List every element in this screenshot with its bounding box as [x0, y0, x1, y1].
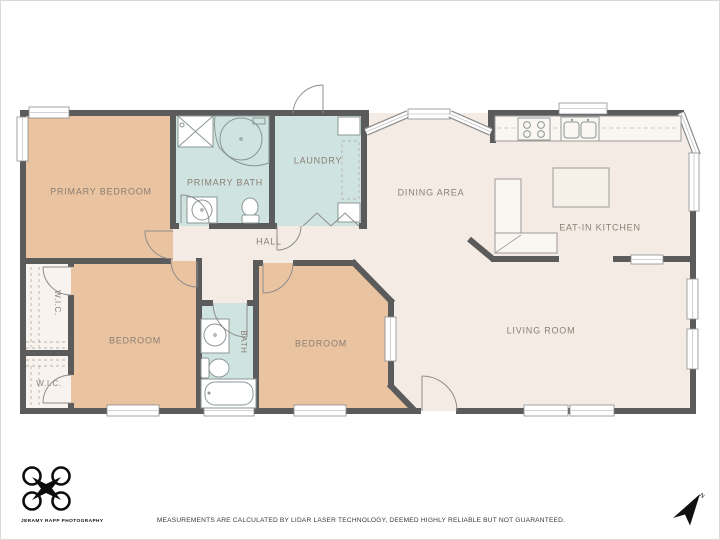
- label-wic2: W.I.C.: [36, 379, 61, 388]
- window-living-right-1: [687, 279, 698, 319]
- window-bedroom2-right: [385, 317, 396, 361]
- sink-icon-primary-bath: [187, 197, 217, 223]
- label-kitchen: EAT-IN KITCHEN: [559, 222, 641, 232]
- label-bath2: BATH: [239, 330, 248, 353]
- stove-icon: [518, 118, 550, 140]
- window-bedroom1-bottom: [107, 405, 159, 416]
- shower-icon: [178, 116, 213, 147]
- kitchen-island: [553, 168, 609, 207]
- measurement-disclaimer: MEASUREMENTS ARE CALCULATED BY LIDAR LAS…: [157, 517, 565, 524]
- label-wic1: W.I.C.: [53, 290, 62, 315]
- window-top-left: [29, 107, 69, 118]
- window-left-wall: [17, 117, 28, 161]
- door-laundry-exterior: [293, 85, 323, 113]
- label-primary-bath: PRIMARY BATH: [187, 177, 263, 187]
- kitchen-corner-window-2: [689, 153, 699, 211]
- window-living-bottom-2: [570, 405, 614, 416]
- kitchen-sink-icon: [561, 117, 599, 141]
- window-living-right-2: [687, 329, 698, 369]
- label-bedroom2: BEDROOM: [295, 338, 347, 348]
- drone-logo-icon: [24, 468, 70, 510]
- bathtub-icon-bath2: [201, 379, 256, 408]
- window-living-bottom-1: [524, 405, 568, 416]
- bay-window-center: [408, 109, 450, 119]
- toilet-icon-primary-bath: [242, 198, 259, 223]
- window-kitchen-sink: [559, 103, 607, 114]
- footer: JERAMY RAPP PHOTOGRAPHY MEASUREMENTS ARE…: [21, 468, 705, 526]
- floor-plan-canvas: PRIMARY BEDROOM PRIMARY BATH LAUNDRY DIN…: [1, 1, 720, 540]
- north-arrow-icon: N: [673, 493, 705, 526]
- photography-credit: JERAMY RAPP PHOTOGRAPHY: [21, 518, 104, 524]
- toilet-icon-bath2: [201, 358, 229, 378]
- label-living: LIVING ROOM: [507, 325, 576, 335]
- label-laundry: LAUNDRY: [294, 155, 342, 165]
- label-hall: HALL: [256, 236, 282, 246]
- label-dining: DINING AREA: [398, 187, 465, 197]
- window-bedroom2-bottom: [294, 405, 346, 416]
- sink-icon-bath2: [201, 319, 229, 353]
- room-wic1: [23, 261, 71, 353]
- label-bedroom1: BEDROOM: [109, 335, 161, 345]
- label-primary-bedroom: PRIMARY BEDROOM: [50, 186, 152, 196]
- north-arrow-label: N: [698, 493, 705, 500]
- floor-plan-page: PRIMARY BEDROOM PRIMARY BATH LAUNDRY DIN…: [0, 0, 720, 540]
- interior-opening-kitchen-living: [631, 255, 663, 264]
